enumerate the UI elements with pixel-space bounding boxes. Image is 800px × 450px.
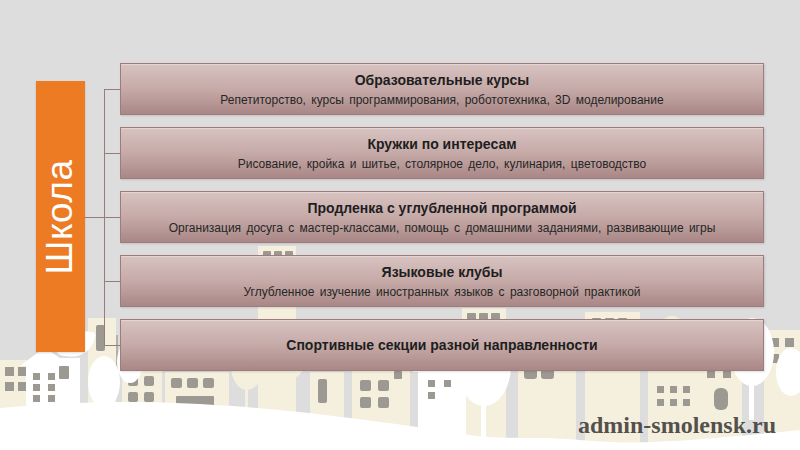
category-title: Спортивные секции разной направленности: [286, 338, 597, 352]
category-subtitle: Рисование, кройка и шитье, столярное дел…: [238, 158, 647, 170]
category-box-5: Спортивные секции разной направленности: [120, 319, 764, 371]
connector-trunk: [85, 217, 104, 218]
category-box-2: Кружки по интересам Рисование, кройка и …: [120, 127, 764, 179]
category-box-3: Продленка с углубленной программой Орган…: [120, 191, 764, 243]
school-banner: Школа: [36, 81, 85, 352]
category-title: Образовательные курсы: [355, 73, 530, 87]
category-box-1: Образовательные курсы Репетиторство, кур…: [120, 63, 764, 115]
connector-stub-4: [104, 281, 120, 282]
slide-root: { "slide": { "banner_label": "Школа", "w…: [0, 0, 800, 450]
watermark: admin-smolensk.ru: [578, 412, 776, 439]
connector-stub-1: [104, 89, 120, 90]
category-subtitle: Организация досуга с мастер-классами, по…: [169, 222, 716, 234]
category-title: Продленка с углубленной программой: [307, 201, 576, 215]
category-title: Языковые клубы: [382, 265, 503, 279]
connector-stub-5: [104, 345, 120, 346]
category-subtitle: Углубленное изучение иностранных языков …: [243, 286, 640, 298]
school-banner-label: Школа: [40, 159, 82, 274]
connector-stub-2: [104, 153, 120, 154]
connector-stub-3: [104, 217, 120, 218]
category-subtitle: Репетиторство, курсы программирования, р…: [220, 94, 663, 106]
category-title: Кружки по интересам: [367, 137, 516, 151]
category-box-4: Языковые клубы Углубленное изучение инос…: [120, 255, 764, 307]
